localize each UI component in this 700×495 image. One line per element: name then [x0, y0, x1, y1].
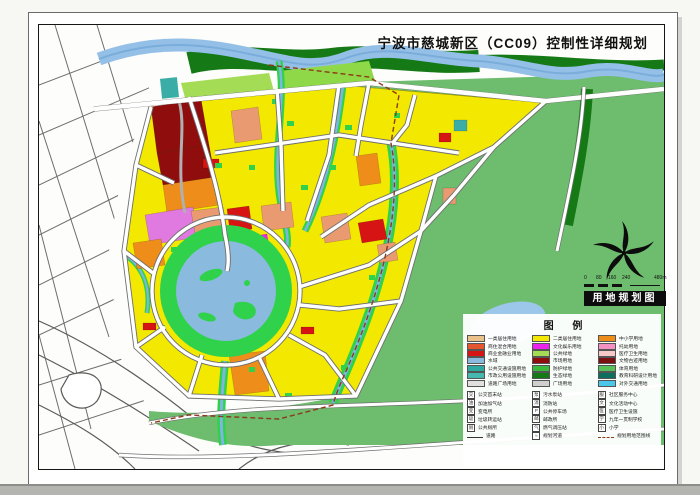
legend-item-label: 垃圾转运站: [478, 416, 502, 423]
legend-item-label: 邮政所: [543, 416, 557, 423]
legend-symbol-icon: ≈: [532, 432, 540, 440]
scale-bar: 080160240480m: [584, 275, 666, 291]
legend-swatch: [467, 335, 485, 342]
legend-symbol-icon: 服: [598, 391, 606, 399]
legend-swatch: [598, 365, 616, 372]
legend-swatch: [532, 350, 550, 357]
legend-item-label: 公共停车场: [543, 408, 567, 415]
legend-symbol-item: 消消防站: [532, 399, 593, 407]
office-parcel-1: [231, 107, 262, 143]
legend-item-label: 污水泵站: [543, 392, 562, 399]
legend-item-label: 市场用地: [553, 358, 572, 365]
legend-color-item: 道路广场用地: [467, 379, 528, 386]
legend-color-item: 二类居住用地: [532, 335, 593, 342]
legend-swatch: [467, 350, 485, 357]
legend-item-label: 社区服务中心: [609, 392, 638, 399]
legend-item-label: 文物古迹用地: [619, 358, 648, 365]
legend-item-label: 变电所: [478, 408, 492, 415]
legend-item-label: 对外交通用地: [619, 380, 648, 387]
legend-symbol-item: 泵污水泵站: [532, 391, 593, 399]
legend-color-item: 文物古迹用地: [598, 357, 659, 364]
legend-item-label: 九年一贯制学校: [609, 416, 642, 423]
plan-sheet: 宁波市慈城新区（CC09）控制性详细规划 080160240480m 用地规划图…: [28, 12, 678, 485]
legend-symbol-item: ≈规划河道: [532, 432, 593, 440]
legend-symbol-item: 厕公共厕所: [467, 423, 528, 431]
legend-item-label: 规划河道: [543, 432, 562, 439]
legend-swatch: [467, 380, 485, 387]
legend-item-label: 市政公用设施用地: [488, 372, 526, 379]
legend-symbol-icon: 文: [598, 399, 606, 407]
legend-symbol-icon: 交: [467, 391, 475, 399]
legend-symbol-item: 服社区服务中心: [598, 391, 659, 399]
legend-item-label: 商业金融业用地: [488, 350, 521, 357]
legend-color-item: 中小学用地: [598, 335, 659, 342]
commercial-parcel-3: [358, 219, 387, 243]
legend-item-label: 道路广场用地: [488, 380, 517, 387]
legend-item-label: 生态绿地: [553, 372, 572, 379]
legend-symbol-item: 医医疗卫生设施: [598, 407, 659, 415]
legend-symbol-icon: 油: [467, 399, 475, 407]
legend-color-item: 商住混合用地: [467, 342, 528, 349]
legend-swatch: [598, 380, 616, 387]
legend-item-label: 二类居住用地: [553, 335, 582, 342]
commercial-strip-w: [143, 323, 156, 330]
legend-item-label: 公交首末站: [478, 392, 502, 399]
legend-symbol-icon: 邮: [532, 415, 540, 423]
legend-symbol-grid: 交公交首末站油加油加气站变变电所圾垃圾转运站厕公共厕所道路泵污水泵站消消防站P公…: [467, 391, 659, 440]
legend-swatch: [598, 343, 616, 350]
commercial-parcel-4: [439, 133, 451, 142]
legend-swatch: [467, 357, 485, 364]
legend-swatch: [598, 372, 616, 379]
legend-color-grid: 一类居住用地商住混合用地商业金融业用地水域公共交通设施用地市政公用设施用地道路广…: [467, 335, 659, 387]
legend-symbol-item: 气燃气调压站: [532, 423, 593, 431]
screenshot-canvas: 宁波市慈城新区（CC09）控制性详细规划 080160240480m 用地规划图…: [0, 0, 700, 495]
boundary-dash-icon: [598, 437, 614, 438]
legend-swatch: [467, 343, 485, 350]
legend-swatch: [532, 357, 550, 364]
legend-symbol-icon: 厕: [467, 424, 475, 432]
legend-symbol-item: 学九年一贯制学校: [598, 415, 659, 423]
legend: 图 例 一类居住用地商住混合用地商业金融业用地水域公共交通设施用地市政公用设施用…: [463, 314, 661, 466]
legend-symbol-icon: 圾: [467, 415, 475, 423]
school-parcel-ne: [356, 153, 381, 186]
legend-symbol-item: 交公交首末站: [467, 391, 528, 399]
utility-parcel-e: [454, 120, 467, 131]
legend-swatch: [467, 365, 485, 372]
legend-symbol-icon: P: [532, 407, 540, 415]
legend-symbol-item: 规划用地范围线: [598, 432, 659, 440]
legend-item-label: 中小学用地: [619, 335, 643, 342]
scale-label: 160: [608, 275, 616, 281]
legend-color-item: 公共绿地: [532, 350, 593, 357]
legend-color-item: 水域: [467, 357, 528, 364]
legend-symbol-item: 邮邮政所: [532, 415, 593, 423]
legend-item-label: 加油加气站: [478, 400, 502, 407]
legend-symbol-icon: 消: [532, 399, 540, 407]
legend-item-label: 医疗卫生用地: [619, 350, 648, 357]
legend-item-label: 公共绿地: [553, 350, 572, 357]
legend-item-label: 教育科研设计用地: [619, 372, 657, 379]
legend-symbol-icon: 医: [598, 407, 606, 415]
legend-item-label: 道路: [486, 432, 496, 439]
road-line-icon: [467, 437, 483, 438]
legend-swatch: [532, 365, 550, 372]
scale-label: 480m: [654, 275, 667, 281]
legend-item-label: 小学: [609, 424, 619, 431]
legend-item-label: 公共交通设施用地: [488, 365, 526, 372]
commercial-strip-e: [301, 327, 314, 334]
legend-item-label: 文化娱乐用地: [553, 343, 582, 350]
legend-color-item: 体育用地: [598, 365, 659, 372]
legend-color-item: 防护绿地: [532, 365, 593, 372]
legend-item-label: 燃气调压站: [543, 424, 567, 431]
legend-item-label: 文化活动中心: [609, 400, 638, 407]
legend-swatch: [532, 343, 550, 350]
legend-item-label: 防护绿地: [553, 365, 572, 372]
legend-symbol-icon: 小: [598, 424, 606, 432]
table-edge-band: [0, 484, 700, 495]
legend-item-label: 公共厕所: [478, 424, 497, 431]
legend-item-label: 托幼用地: [619, 343, 638, 350]
legend-item-label: 消防站: [543, 400, 557, 407]
legend-symbol-item: P公共停车场: [532, 407, 593, 415]
legend-symbol-item: 文文化活动中心: [598, 399, 659, 407]
scale-label: 0: [584, 275, 587, 281]
legend-symbol-item: 小小学: [598, 423, 659, 431]
page-title: 宁波市慈城新区（CC09）控制性详细规划: [377, 32, 648, 52]
legend-color-item: 对外交通用地: [598, 379, 659, 386]
legend-color-item: 生态绿地: [532, 372, 593, 379]
legend-swatch: [532, 380, 550, 387]
legend-title: 图 例: [475, 317, 659, 332]
legend-color-item: 托幼用地: [598, 342, 659, 349]
scale-bar-labels: 080160240480m: [584, 275, 666, 282]
legend-swatch: [532, 335, 550, 342]
legend-color-item: 商业金融业用地: [467, 350, 528, 357]
legend-color-item: 市场用地: [532, 357, 593, 364]
legend-swatch: [598, 335, 616, 342]
legend-symbol-icon: 变: [467, 407, 475, 415]
legend-color-item: 广场用地: [532, 379, 593, 386]
legend-symbol-icon: 学: [598, 415, 606, 423]
map-type-label: 用地规划图: [584, 291, 666, 306]
legend-symbol-item: 圾垃圾转运站: [467, 415, 528, 423]
legend-item-label: 医疗卫生设施: [609, 408, 638, 415]
legend-item-label: 水域: [488, 358, 498, 365]
legend-swatch: [532, 372, 550, 379]
legend-symbol-icon: 气: [532, 424, 540, 432]
legend-symbol-item: 变变电所: [467, 407, 528, 415]
legend-symbol-item: 道路: [467, 432, 528, 440]
legend-swatch: [467, 372, 485, 379]
legend-color-item: 一类居住用地: [467, 335, 528, 342]
legend-item-label: 一类居住用地: [488, 335, 517, 342]
scale-bar-ticks: [584, 284, 664, 287]
scale-label: 240: [622, 275, 630, 281]
scale-label: 80: [596, 275, 602, 281]
legend-color-item: 医疗卫生用地: [598, 350, 659, 357]
legend-symbol-icon: 泵: [532, 391, 540, 399]
legend-color-item: 文化娱乐用地: [532, 342, 593, 349]
legend-symbol-item: 油加油加气站: [467, 399, 528, 407]
utility-parcel-north: [160, 77, 179, 99]
legend-item-label: 广场用地: [553, 380, 572, 387]
legend-color-item: 市政公用设施用地: [467, 372, 528, 379]
legend-item-label: 商住混合用地: [488, 343, 517, 350]
legend-color-item: 教育科研设计用地: [598, 372, 659, 379]
legend-color-item: 公共交通设施用地: [467, 365, 528, 372]
legend-swatch: [598, 350, 616, 357]
legend-item-label: 规划用地范围线: [617, 432, 650, 439]
legend-swatch: [598, 357, 616, 364]
legend-item-label: 体育用地: [619, 365, 638, 372]
map-frame: 宁波市慈城新区（CC09）控制性详细规划 080160240480m 用地规划图…: [38, 24, 665, 470]
